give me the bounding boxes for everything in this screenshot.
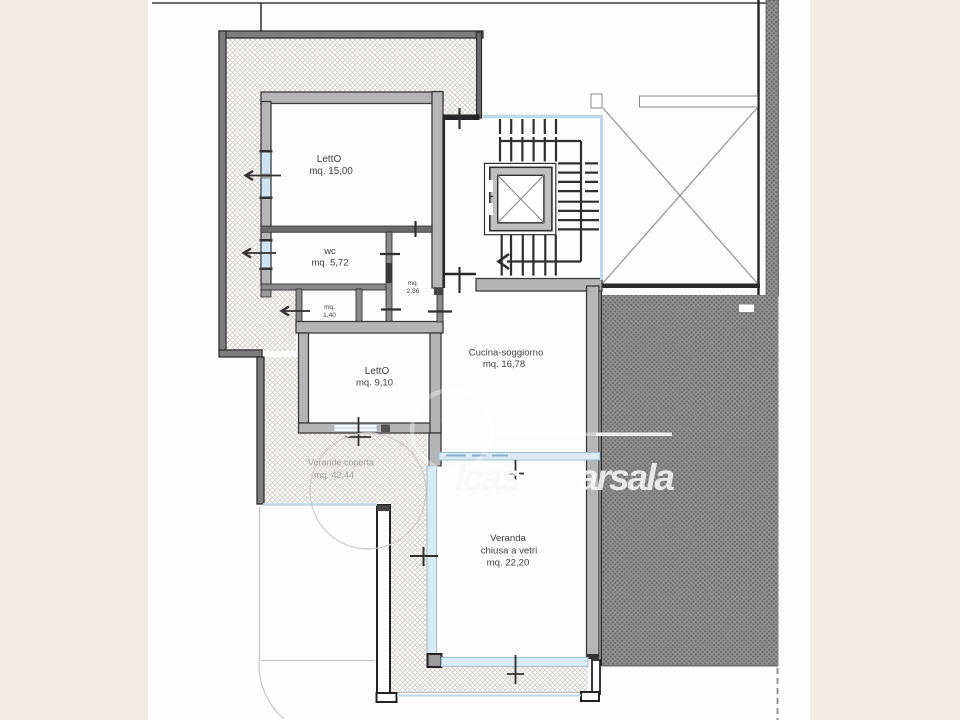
svg-text:LettO: LettO [365, 366, 390, 377]
svg-text:2,86: 2,86 [407, 288, 420, 295]
svg-text:mq. 5,72: mq. 5,72 [312, 258, 349, 269]
svg-text:mq. 42,44: mq. 42,44 [314, 470, 354, 480]
svg-text:Veranda: Veranda [490, 533, 526, 544]
svg-text:Verande coperta: Verande coperta [308, 458, 374, 468]
svg-text:mq. 15,00: mq. 15,00 [309, 166, 353, 177]
svg-text:arsala: arsala [578, 457, 674, 498]
svg-text:mq. 9,10: mq. 9,10 [356, 378, 393, 389]
svg-text:LettO: LettO [317, 154, 342, 165]
svg-text:Cucina-soggiorno: Cucina-soggiorno [469, 348, 543, 359]
svg-text:mq.: mq. [408, 280, 419, 287]
svg-text:1,40: 1,40 [323, 312, 336, 319]
svg-text:mq. 16,78: mq. 16,78 [483, 359, 525, 370]
svg-text:mq.: mq. [324, 304, 335, 311]
svg-text:lcas: lcas [455, 457, 520, 498]
svg-text:mq. 22,20: mq. 22,20 [487, 558, 530, 569]
svg-text:chiusa a vetri: chiusa a vetri [481, 546, 538, 557]
svg-text:wc: wc [323, 246, 336, 257]
